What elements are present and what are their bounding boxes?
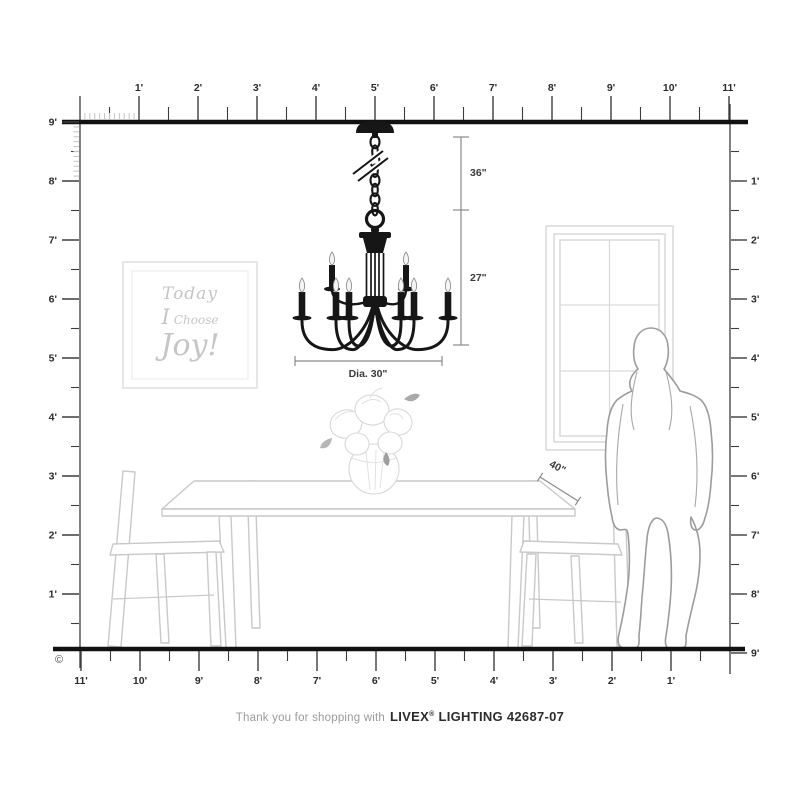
ruler-label: 8' xyxy=(548,82,556,94)
candle-bulb xyxy=(398,278,403,292)
ruler-label: 6' xyxy=(751,471,759,483)
ruler-label: 5' xyxy=(371,82,379,94)
ruler-label: 6' xyxy=(49,294,57,306)
ruler-top: 1'2'3'4'5'6'7'8'9'10'11' xyxy=(85,82,736,120)
chandelier-chain xyxy=(371,136,380,216)
ruler-label: 3' xyxy=(751,294,759,306)
fixture-height-label: 27" xyxy=(470,272,487,284)
ruler-label: 7' xyxy=(751,530,759,542)
ruler-label: 1' xyxy=(49,589,57,601)
ruler-label: 7' xyxy=(313,675,321,687)
leaf xyxy=(320,438,332,448)
ruler-label: 2' xyxy=(194,82,202,94)
table-depth-label: 40" xyxy=(547,458,567,476)
wall-art-line2: IChoose xyxy=(162,306,219,328)
candle-bulb xyxy=(299,278,304,292)
chandelier-column xyxy=(367,253,384,297)
dimension-annotations: 36" 27" Dia. 30" 40" xyxy=(295,137,581,505)
leaf xyxy=(404,394,420,402)
ruler-right: 1'2'3'4'5'6'7'8'9' xyxy=(731,152,759,660)
candle-bulb xyxy=(403,252,408,265)
ruler-label: 2' xyxy=(751,235,759,247)
ruler-label: 8' xyxy=(254,675,262,687)
candle-bulb xyxy=(329,252,334,265)
chandelier-loop xyxy=(367,211,384,228)
ruler-label: 3' xyxy=(49,471,57,483)
ruler-bottom: 11'10'9'8'7'6'5'4'3'2'1' xyxy=(74,651,700,687)
copyright-symbol: © xyxy=(55,654,63,666)
ruler-left: 9'8'7'6'5'4'3'2'1' xyxy=(49,117,79,624)
fixture-diameter-label: Dia. 30" xyxy=(349,368,388,380)
candle-bulb xyxy=(346,278,351,292)
ruler-label: 3' xyxy=(253,82,261,94)
ruler-label: 4' xyxy=(49,412,57,424)
wall-art-line2-word1: I xyxy=(162,305,170,329)
ruler-label: 11' xyxy=(722,82,736,94)
ruler-label: 2' xyxy=(608,675,616,687)
ruler-label: 7' xyxy=(49,235,57,247)
ruler-label: 10' xyxy=(133,675,147,687)
ruler-label: 3' xyxy=(549,675,557,687)
ruler-label: 8' xyxy=(49,176,57,188)
ruler-label: 4' xyxy=(751,353,759,365)
ruler-label: 6' xyxy=(430,82,438,94)
table-leg xyxy=(219,516,236,648)
candle-bulb xyxy=(445,278,450,292)
chandelier-hub xyxy=(363,296,387,307)
ruler-label: 9' xyxy=(751,648,759,660)
table-leg xyxy=(508,516,524,648)
dining-table xyxy=(162,481,575,648)
ruler-label: 10' xyxy=(663,82,677,94)
ruler-label: 1' xyxy=(667,675,675,687)
ruler-label: 5' xyxy=(49,353,57,365)
wall-art-line3: Joy! xyxy=(160,330,219,362)
scale-diagram-canvas: 1'2'3'4'5'6'7'8'9'10'11' 9'8'7'6'5'4'3'2… xyxy=(0,0,800,800)
ruler-label: 11' xyxy=(74,675,88,687)
ruler-label: 4' xyxy=(312,82,320,94)
candle-bulb xyxy=(411,278,416,292)
candle xyxy=(439,278,458,320)
ruler-label: 5' xyxy=(751,412,759,424)
ruler-label: 9' xyxy=(607,82,615,94)
ruler-label: 8' xyxy=(751,589,759,601)
footer-prefix: Thank you for shopping with xyxy=(236,712,385,724)
candle xyxy=(340,278,359,320)
ruler-label: 1' xyxy=(135,82,143,94)
chandelier xyxy=(293,121,458,350)
ruler-label: 9' xyxy=(49,117,57,129)
ruler-label: 9' xyxy=(195,675,203,687)
ruler-label: 6' xyxy=(372,675,380,687)
wall-art-text: Today IChoose Joy! xyxy=(131,269,249,379)
ruler-label: 1' xyxy=(751,176,759,188)
ruler-label: 2' xyxy=(49,530,57,542)
chain-length-label: 36" xyxy=(470,167,487,179)
flower-vase xyxy=(320,388,420,494)
candle xyxy=(293,278,312,320)
product-number: LIGHTING 42687-07 xyxy=(438,709,564,724)
brand-name: LIVEX xyxy=(390,709,429,724)
ruler-label: 4' xyxy=(490,675,498,687)
table-skirt xyxy=(162,509,575,516)
ruler-label: 7' xyxy=(489,82,497,94)
wall-art-line2-word2: Choose xyxy=(174,313,219,327)
footer: Thank you for shopping withLIVEX®LIGHTIN… xyxy=(0,709,800,724)
registered-mark: ® xyxy=(429,711,434,718)
scale-diagram: 1'2'3'4'5'6'7'8'9'10'11' 9'8'7'6'5'4'3'2… xyxy=(0,0,800,800)
ruler-label: 5' xyxy=(431,675,439,687)
wall-art-line1: Today xyxy=(162,286,218,304)
